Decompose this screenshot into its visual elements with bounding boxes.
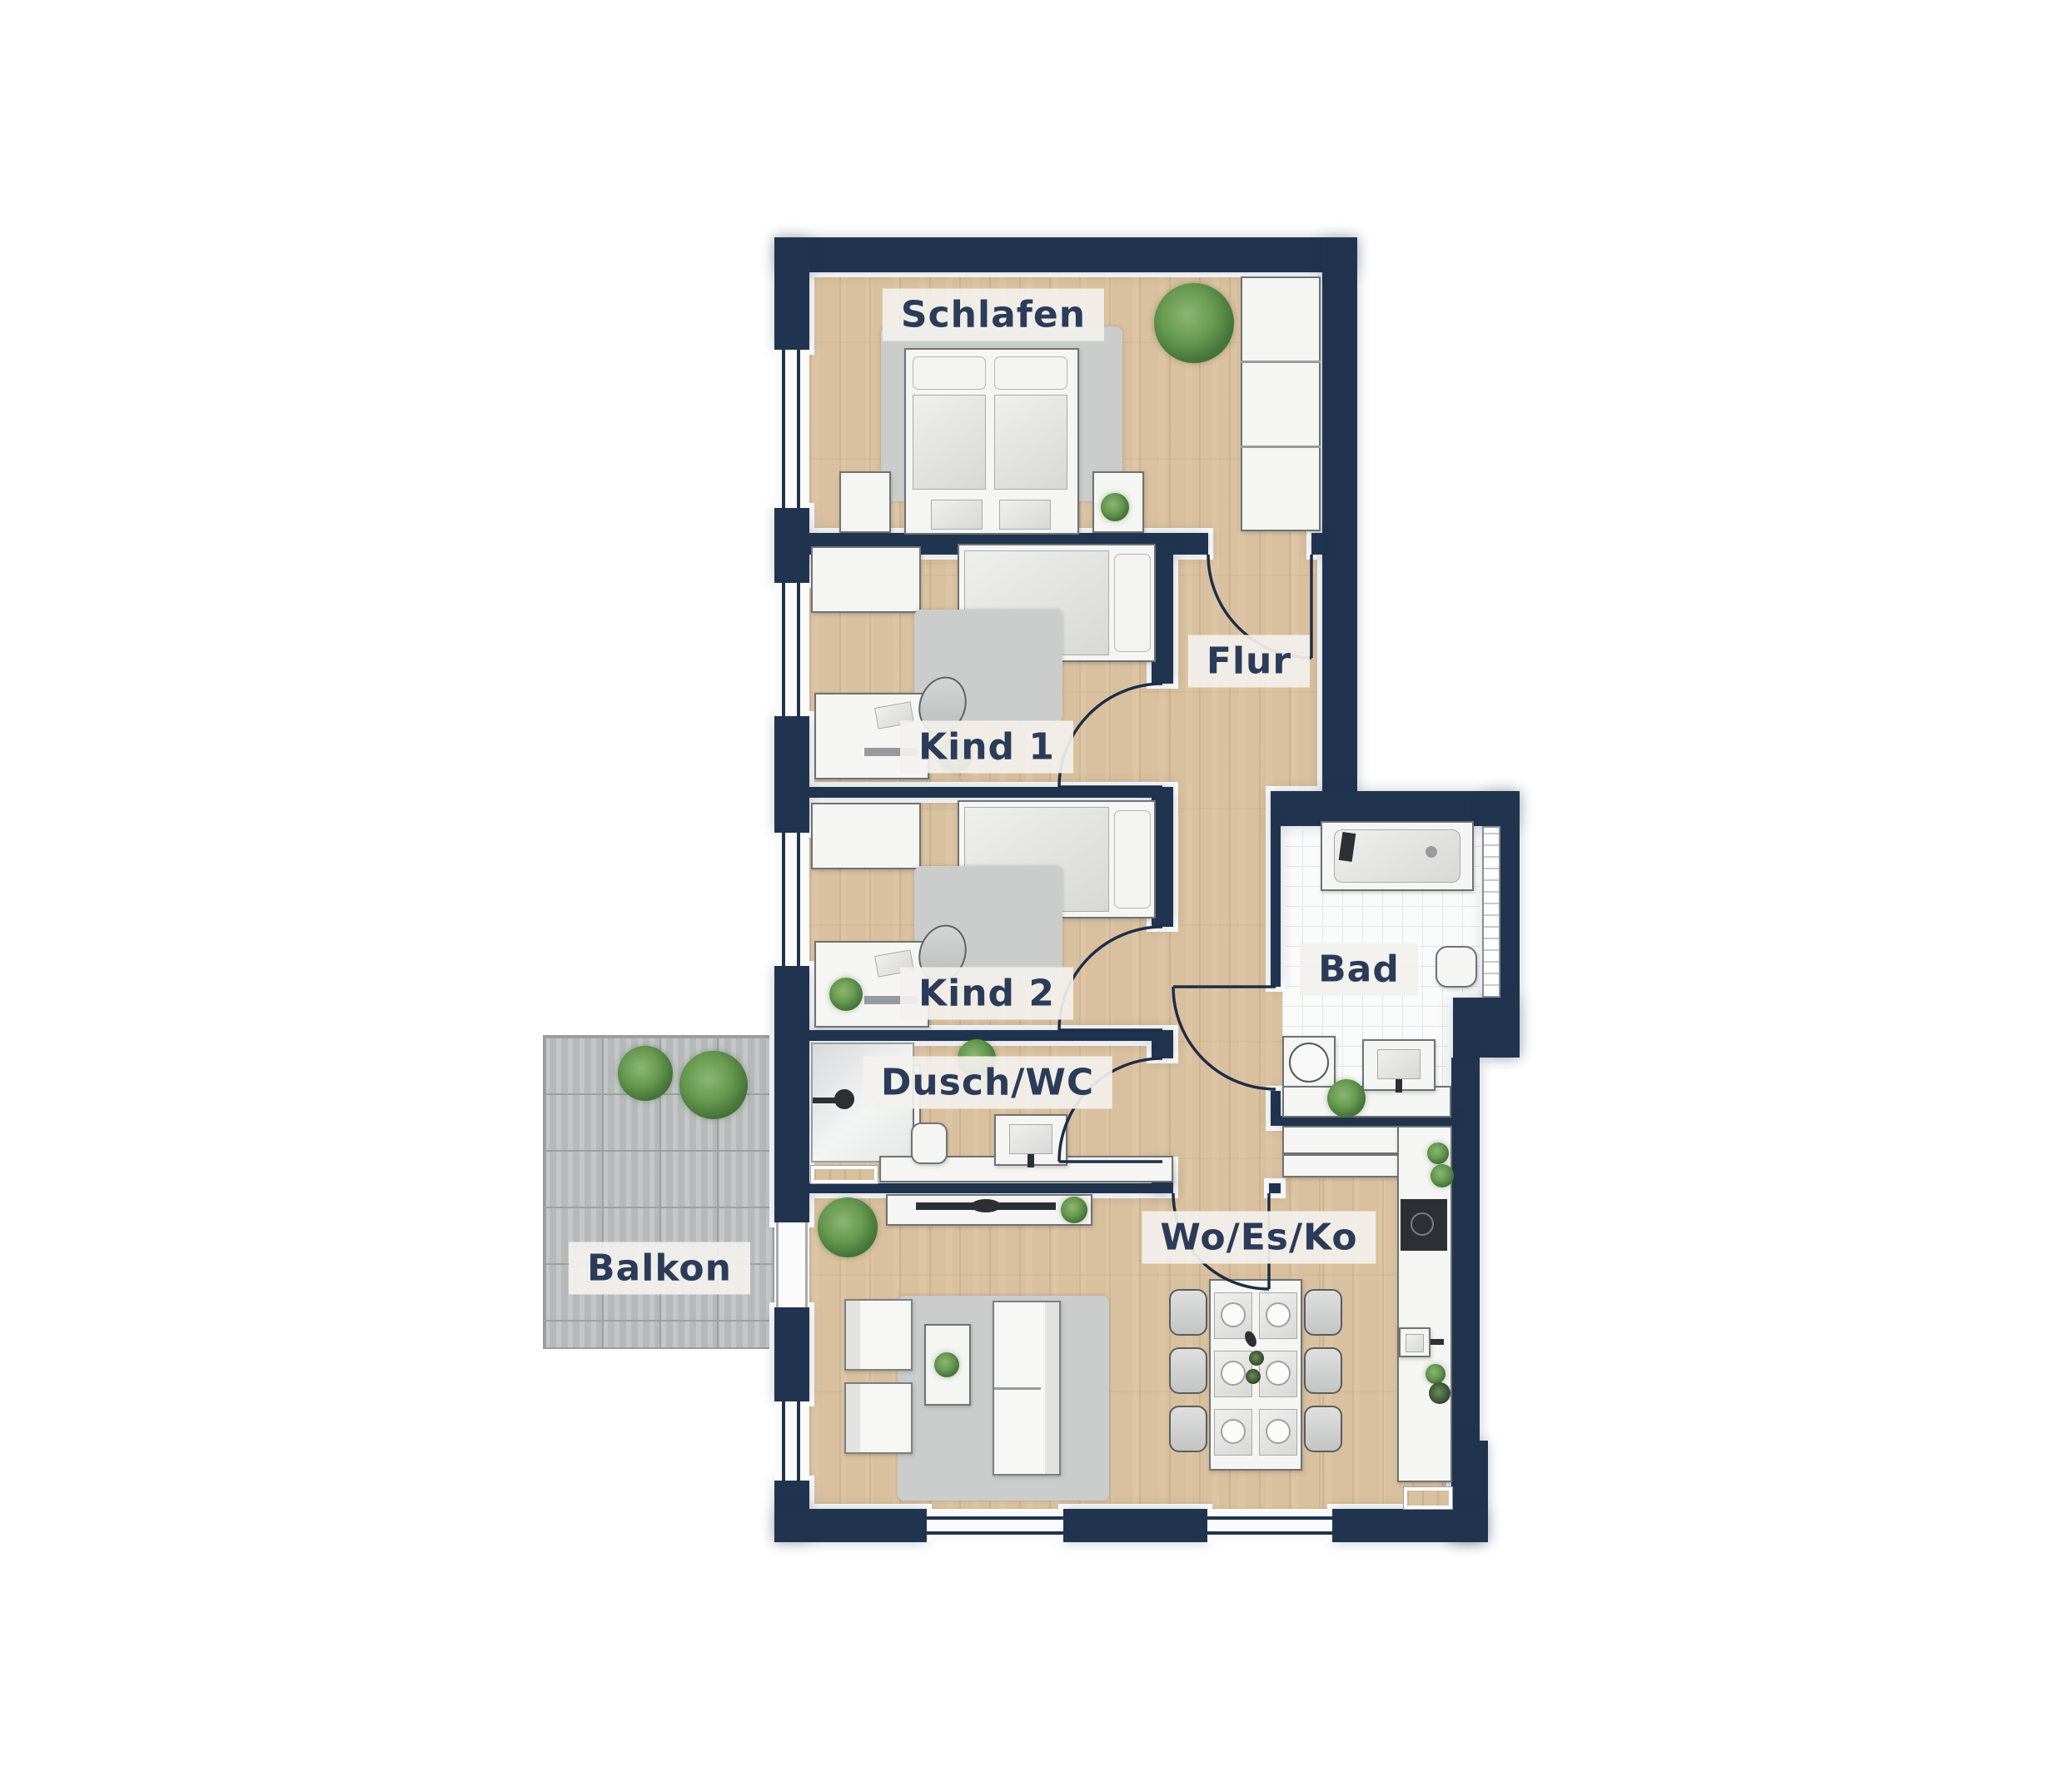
washer-drum bbox=[1289, 1043, 1329, 1083]
window-bottom-1 bbox=[927, 1509, 1063, 1542]
window-kind2-glass-2 bbox=[797, 833, 800, 966]
wall-6 bbox=[774, 1307, 809, 1401]
window-bottom-2 bbox=[1207, 1509, 1332, 1542]
plate-5 bbox=[1266, 1361, 1291, 1386]
wall-18 bbox=[1311, 533, 1322, 555]
sink-dusch bbox=[1009, 1124, 1052, 1154]
room-label-kind2: Kind 2 bbox=[900, 968, 1073, 1020]
window-kind1-glass-2 bbox=[797, 583, 800, 716]
nightstand-plant bbox=[1101, 493, 1129, 521]
wall-1 bbox=[774, 237, 809, 350]
nightstand-left bbox=[839, 471, 891, 533]
lowboard-plant bbox=[1061, 1197, 1087, 1223]
window-kind1 bbox=[774, 583, 809, 716]
kitchen-faucet bbox=[1431, 1339, 1444, 1345]
table-pot-1 bbox=[1249, 1351, 1264, 1366]
window-bottom-1-glass-1 bbox=[927, 1516, 1063, 1520]
dining-chair-4 bbox=[1304, 1289, 1342, 1336]
window-wohnen bbox=[774, 1401, 809, 1481]
balkon-plant-2 bbox=[679, 1051, 748, 1119]
plate-3 bbox=[1221, 1419, 1246, 1444]
dining-chair-6 bbox=[1304, 1406, 1342, 1452]
wall-0 bbox=[774, 237, 1357, 272]
wall-23 bbox=[809, 787, 1152, 798]
faucet-dusch bbox=[1028, 1154, 1034, 1167]
shower-head bbox=[834, 1089, 854, 1109]
window-schlafen bbox=[774, 350, 809, 508]
shower-niche bbox=[811, 1166, 878, 1183]
window-kind2-glass-1 bbox=[782, 833, 785, 966]
kitchen-counter-top bbox=[1282, 1126, 1409, 1154]
wall-11 bbox=[1453, 998, 1520, 1058]
dining-chair-1 bbox=[1169, 1289, 1207, 1336]
tv-center bbox=[971, 1199, 1001, 1212]
cooktop-ring bbox=[1411, 1212, 1434, 1236]
foot-bench-left bbox=[931, 500, 983, 530]
coffee-table-plant bbox=[934, 1352, 959, 1377]
pillow-kind2 bbox=[1114, 810, 1151, 908]
foot-bench-right bbox=[999, 500, 1051, 530]
wall-16 bbox=[1332, 1509, 1488, 1542]
wall-25 bbox=[809, 1183, 1152, 1193]
wall-3 bbox=[774, 716, 809, 833]
radiator-bad bbox=[1482, 826, 1500, 998]
table-pot-2 bbox=[1246, 1369, 1261, 1384]
entry-door-mat bbox=[1404, 1487, 1452, 1509]
window-schlafen-glass-2 bbox=[797, 350, 800, 508]
room-label-bad: Bad bbox=[1300, 943, 1418, 996]
wardrobe-schlafen bbox=[1241, 276, 1321, 531]
plate-4 bbox=[1266, 1302, 1291, 1327]
sink-bad bbox=[1377, 1049, 1421, 1079]
stool-bad bbox=[1436, 946, 1477, 988]
wall-29 bbox=[1271, 1091, 1281, 1116]
room-label-kind1: Kind 1 bbox=[900, 721, 1073, 774]
dining-chair-3 bbox=[1169, 1406, 1207, 1452]
pillow-kind1 bbox=[1114, 554, 1151, 652]
wall-2 bbox=[774, 508, 809, 583]
dining-chair-2 bbox=[1169, 1347, 1207, 1394]
balkon-plant-1 bbox=[618, 1046, 673, 1101]
wohnen-plant-big bbox=[818, 1197, 878, 1257]
armchair-1 bbox=[844, 1299, 913, 1371]
room-label-schlafen: Schlafen bbox=[883, 289, 1104, 341]
duvet-left bbox=[913, 395, 986, 490]
room-label-balkon: Balkon bbox=[569, 1242, 750, 1295]
wall-14 bbox=[774, 1509, 927, 1542]
room-label-wo-es-ko: Wo/Es/Ko bbox=[1142, 1212, 1376, 1264]
wardrobe-kind2 bbox=[811, 803, 921, 869]
wc-toilet bbox=[911, 1122, 948, 1164]
wall-28 bbox=[1271, 826, 1281, 987]
balcony-door-opening bbox=[774, 1222, 809, 1307]
floor-plan: SchlafenKind 1Kind 2Dusch/WCFlurBadWo/Es… bbox=[0, 0, 2065, 1792]
armchair-2 bbox=[844, 1382, 913, 1454]
wall-27 bbox=[1269, 1183, 1281, 1193]
pillow-right bbox=[994, 356, 1067, 390]
wall-21 bbox=[1152, 1030, 1173, 1058]
window-wohnen-glass-1 bbox=[782, 1401, 785, 1481]
dining-chair-5 bbox=[1304, 1347, 1342, 1394]
kitchen-sink-basin bbox=[1406, 1334, 1424, 1352]
window-wohnen-glass-2 bbox=[797, 1401, 800, 1481]
wall-5 bbox=[774, 966, 809, 1222]
window-bottom-2-glass-2 bbox=[1207, 1531, 1332, 1535]
kitchen-plant-1 bbox=[1427, 1142, 1449, 1164]
wall-15 bbox=[1063, 1509, 1207, 1542]
plate-6 bbox=[1266, 1419, 1291, 1444]
kitchen-plant-3 bbox=[1426, 1364, 1445, 1384]
wardrobe-kind1 bbox=[811, 546, 921, 613]
schlafen-plant bbox=[1154, 283, 1234, 363]
faucet-bad bbox=[1396, 1079, 1402, 1093]
kind2-desk-plant bbox=[829, 978, 863, 1011]
sofa-seam bbox=[994, 1387, 1041, 1390]
duvet-right bbox=[994, 395, 1067, 490]
room-label-flur: Flur bbox=[1188, 635, 1310, 688]
wall-8 bbox=[1322, 237, 1357, 799]
window-bottom-1-glass-2 bbox=[927, 1531, 1063, 1535]
window-kind1-glass-1 bbox=[782, 583, 785, 716]
window-bottom-2-glass-1 bbox=[1207, 1516, 1332, 1520]
room-label-dusch-wc: Dusch/WC bbox=[863, 1057, 1112, 1109]
plate-2 bbox=[1221, 1361, 1246, 1386]
kitchen-pot bbox=[1429, 1382, 1450, 1404]
kitchen-plant-2 bbox=[1431, 1164, 1454, 1187]
window-kind2 bbox=[774, 833, 809, 966]
tub-drain bbox=[1426, 846, 1437, 858]
plate-1 bbox=[1221, 1302, 1246, 1327]
wardrobe-shelf-line-2 bbox=[1241, 446, 1321, 448]
wardrobe-shelf-line-1 bbox=[1241, 361, 1321, 363]
wall-26 bbox=[1152, 1183, 1173, 1193]
window-schlafen-glass-1 bbox=[782, 350, 785, 508]
balcony-door-opening-edge-1 bbox=[776, 1222, 779, 1307]
balcony-door-opening-edge-2 bbox=[805, 1222, 808, 1307]
bad-counter-plant bbox=[1327, 1079, 1366, 1118]
pillow-left bbox=[913, 356, 986, 390]
